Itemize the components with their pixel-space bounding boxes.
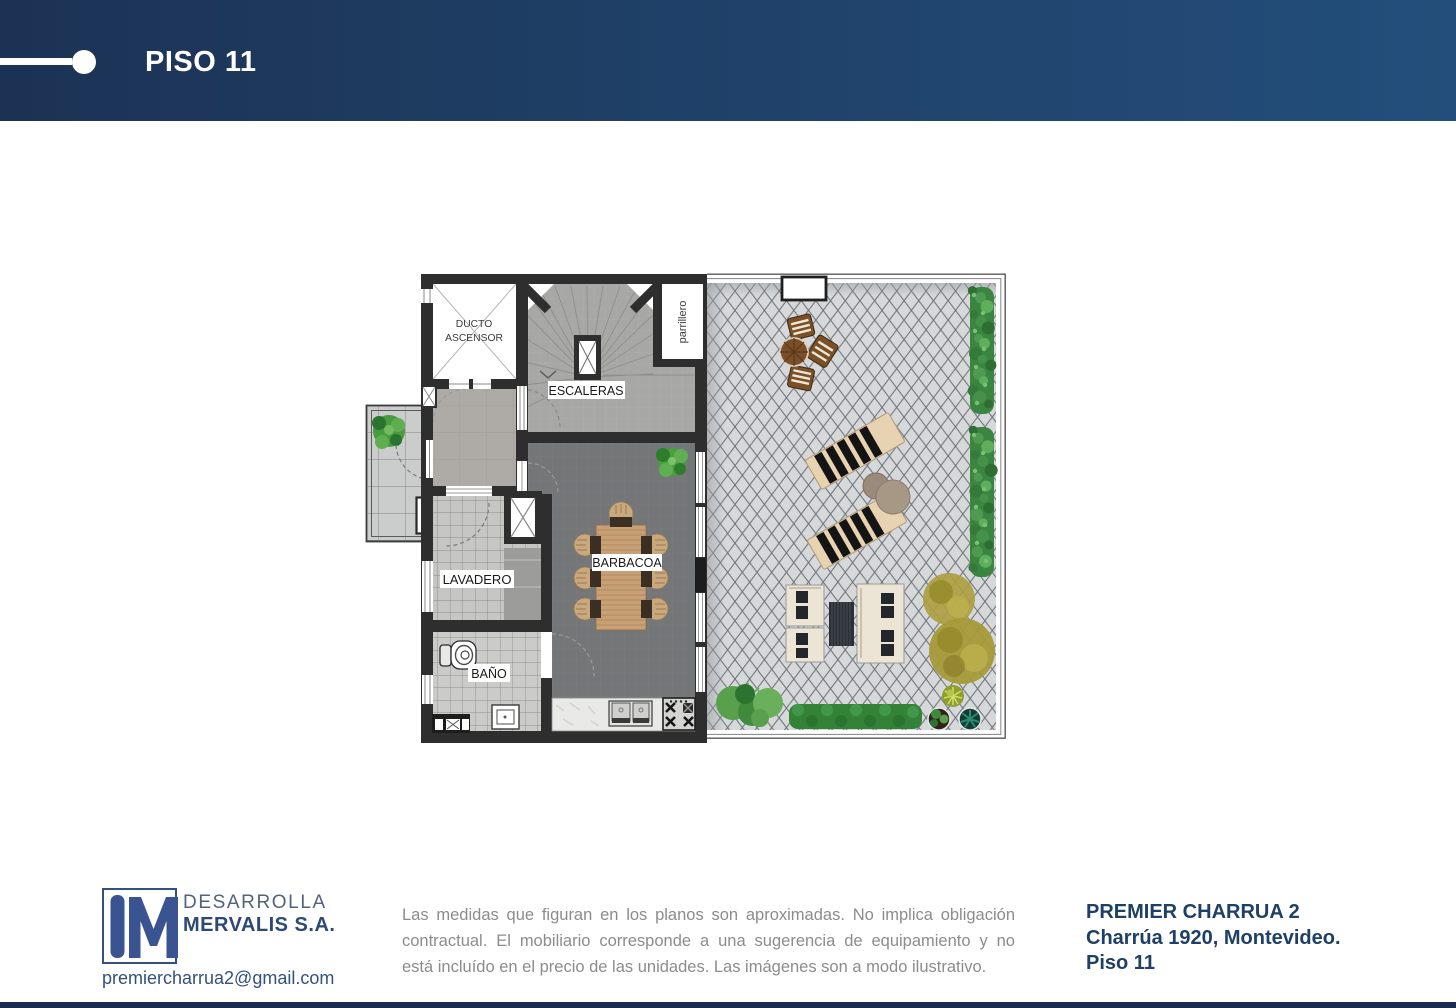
svg-text:ESCALERAS: ESCALERAS [548,384,623,398]
svg-text:BARBACOA: BARBACOA [592,556,662,570]
svg-text:DUCTO: DUCTO [456,319,492,330]
svg-text:parrillero: parrillero [677,301,689,344]
svg-text:LAVADERO: LAVADERO [443,572,512,587]
svg-text:BAÑO: BAÑO [471,667,507,681]
svg-text:ASCENSOR: ASCENSOR [445,333,503,344]
